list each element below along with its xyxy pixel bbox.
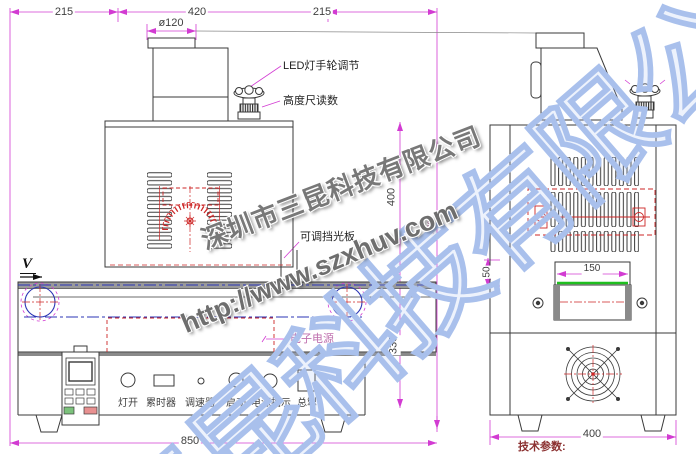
chimney-cap (148, 38, 195, 48)
control-label-master-switch: 总掣 (297, 398, 317, 410)
blower-housing (541, 48, 622, 120)
master-switch (298, 370, 315, 391)
dim-top-left: 215 (53, 6, 75, 19)
dim-top-center: 420 (186, 6, 208, 19)
control-label-lamp-on: 灯开 (118, 398, 138, 410)
callout-light-shield: 可调挡光板 (300, 231, 355, 244)
handwheel-icon-side (630, 84, 660, 118)
tech-params-note: 技术参数: (518, 441, 566, 454)
vfd-stop-key (84, 407, 97, 414)
dim-opening-height: 50 (481, 265, 493, 278)
control-label-hour-meter: 累时器 (146, 398, 176, 410)
dim-overall-depth: 400 (581, 428, 603, 441)
machine-foot (518, 415, 542, 431)
blower-motor-tab (531, 62, 541, 98)
dim-chimney-diameter: ø120 (156, 17, 185, 30)
chimney-cap-side (536, 33, 584, 48)
speed-knob (198, 378, 204, 384)
height-gauge-scale (240, 104, 258, 112)
hour-meter (154, 375, 174, 386)
callout-electronic-power: 电子电源 (290, 333, 334, 346)
machine-foot (36, 415, 62, 432)
uv-lamp-reflector (107, 186, 292, 352)
control-label-start: 启动 (226, 398, 246, 410)
machine-foot (641, 415, 665, 431)
dim-height-lower: 330 (388, 335, 401, 355)
vent-slots-top (549, 157, 639, 186)
technical-drawing-canvas: 215 420 215 ø120 400 330 ø70 850 LED灯手轮调… (0, 0, 696, 454)
start-button (229, 373, 243, 387)
machine-foot (320, 415, 346, 432)
front-view-drawing (18, 31, 536, 432)
belt-cross-section (554, 285, 631, 320)
vfd-controller (62, 346, 99, 425)
handwheel-icon (234, 86, 264, 119)
control-label-speed-knob: 调速器 (185, 398, 215, 410)
vent-slots-middle (549, 192, 639, 227)
dim-lamp-diameter: ø70 (426, 219, 435, 235)
dim-overall-width: 850 (179, 435, 201, 448)
dim-height-upper: 400 (386, 187, 399, 207)
dim-opening-width: 150 (582, 263, 603, 275)
lamp-housing (105, 121, 293, 267)
power-indicator-lamp (263, 374, 277, 388)
callout-led-handwheel: LED灯手轮调节 (283, 60, 359, 73)
belt-direction-label: V (20, 256, 36, 274)
dim-top-right: 215 (311, 6, 333, 19)
callout-height-gauge: 高度尺读数 (283, 95, 338, 108)
control-label-power-indicator: 电源指示 (251, 398, 291, 410)
exhaust-box (153, 48, 228, 121)
vent-slots-bottom (549, 231, 639, 252)
side-view-drawing (490, 33, 676, 431)
lamp-on-button (121, 373, 135, 387)
electronic-power-outline (107, 318, 274, 352)
panel-controls (121, 370, 315, 391)
vfd-run-key (64, 407, 74, 414)
